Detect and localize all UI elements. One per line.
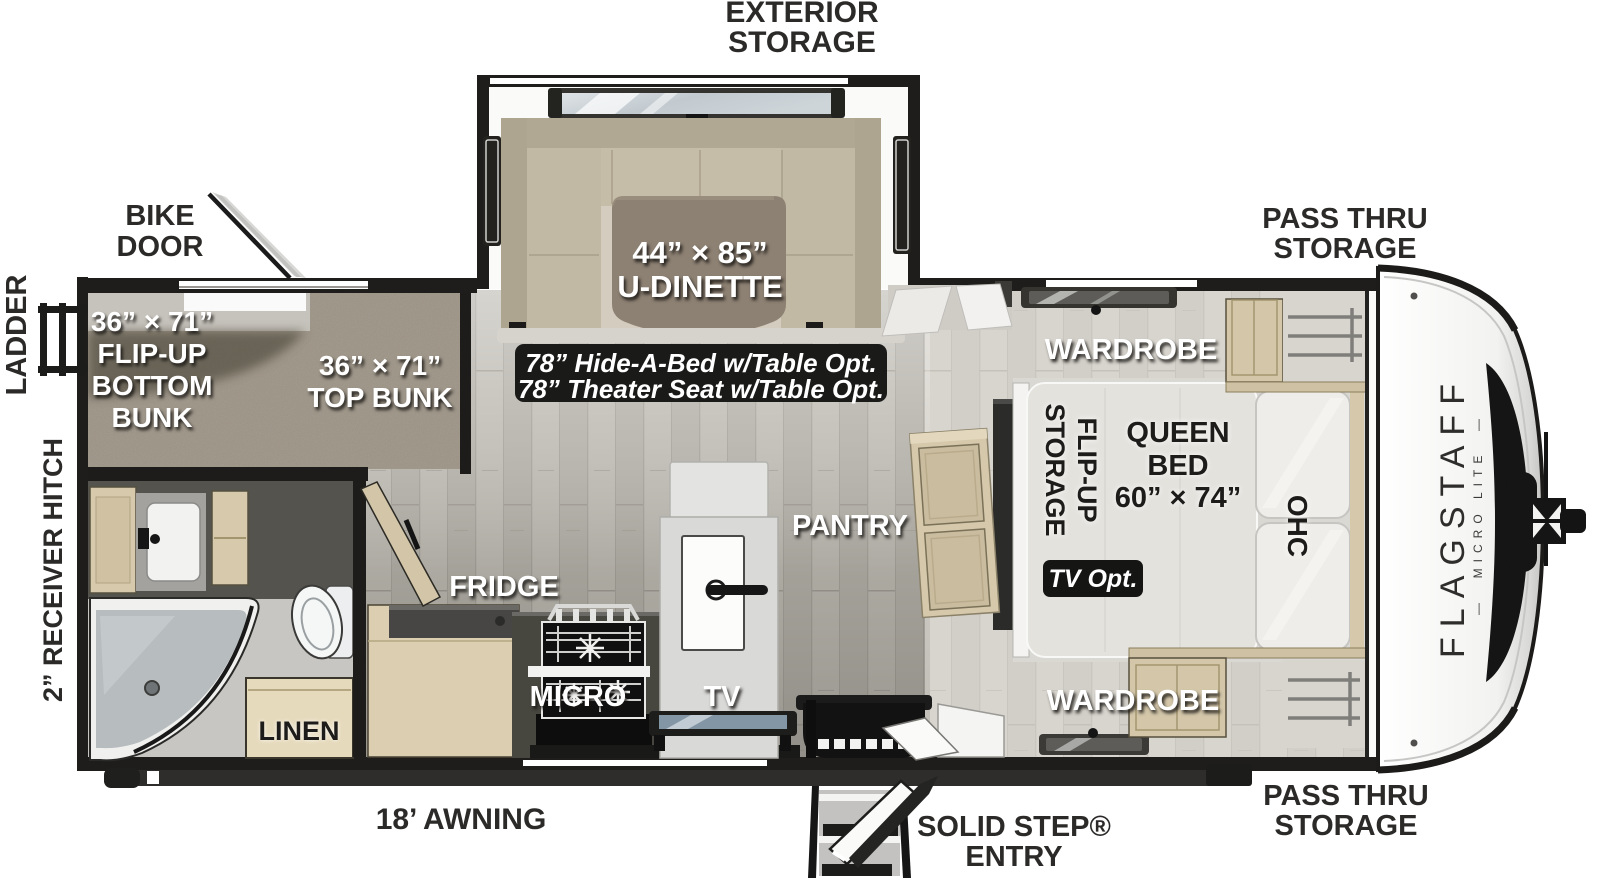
svg-text:18’ AWNING: 18’ AWNING [376, 803, 547, 836]
svg-text:BUNK: BUNK [112, 402, 193, 433]
svg-text:44” × 85”: 44” × 85” [632, 235, 767, 270]
svg-text:TOP BUNK: TOP BUNK [307, 382, 452, 413]
svg-text:36” × 71”: 36” × 71” [91, 306, 213, 337]
svg-text:WARDROBE: WARDROBE [1045, 334, 1217, 366]
svg-text:STORAGE: STORAGE [1274, 233, 1417, 265]
svg-text:LADDER: LADDER [1, 275, 33, 396]
svg-text:TV Opt.: TV Opt. [1049, 565, 1138, 593]
svg-text:FLIP-UP: FLIP-UP [98, 338, 207, 369]
svg-text:DOOR: DOOR [117, 231, 204, 263]
svg-text:SOLID STEP®: SOLID STEP® [917, 811, 1111, 843]
svg-text:WARDROBE: WARDROBE [1047, 685, 1219, 717]
svg-text:U-DINETTE: U-DINETTE [617, 269, 782, 304]
svg-text:FLAGSTAFF: FLAGSTAFF [1434, 374, 1472, 658]
svg-text:TV: TV [703, 681, 741, 713]
svg-text:2” RECEIVER HITCH: 2” RECEIVER HITCH [38, 438, 68, 702]
svg-text:BOTTOM: BOTTOM [92, 370, 213, 401]
svg-text:STORAGE: STORAGE [1275, 810, 1418, 842]
svg-text:ENTRY: ENTRY [965, 841, 1062, 873]
svg-text:STORAGE: STORAGE [728, 26, 876, 59]
svg-text:36” × 71”: 36” × 71” [319, 350, 441, 381]
svg-text:QUEEN: QUEEN [1126, 417, 1229, 449]
svg-text:PASS THRU: PASS THRU [1262, 203, 1427, 235]
svg-text:BIKE: BIKE [125, 200, 194, 232]
svg-text:60” × 74”: 60” × 74” [1115, 482, 1242, 514]
svg-text:PASS THRU: PASS THRU [1263, 780, 1428, 812]
svg-text:MICRO: MICRO [530, 681, 627, 713]
svg-text:78” Theater Seat w/Table Opt.: 78” Theater Seat w/Table Opt. [518, 374, 884, 404]
svg-text:PANTRY: PANTRY [792, 510, 908, 542]
svg-text:— MICRO LITE —: — MICRO LITE — [1471, 413, 1485, 615]
svg-text:LINEN: LINEN [259, 716, 340, 746]
svg-text:OHC: OHC [1282, 495, 1313, 557]
svg-text:FRIDGE: FRIDGE [449, 571, 559, 603]
svg-text:EXTERIOR: EXTERIOR [725, 0, 879, 29]
svg-text:BED: BED [1147, 450, 1208, 482]
